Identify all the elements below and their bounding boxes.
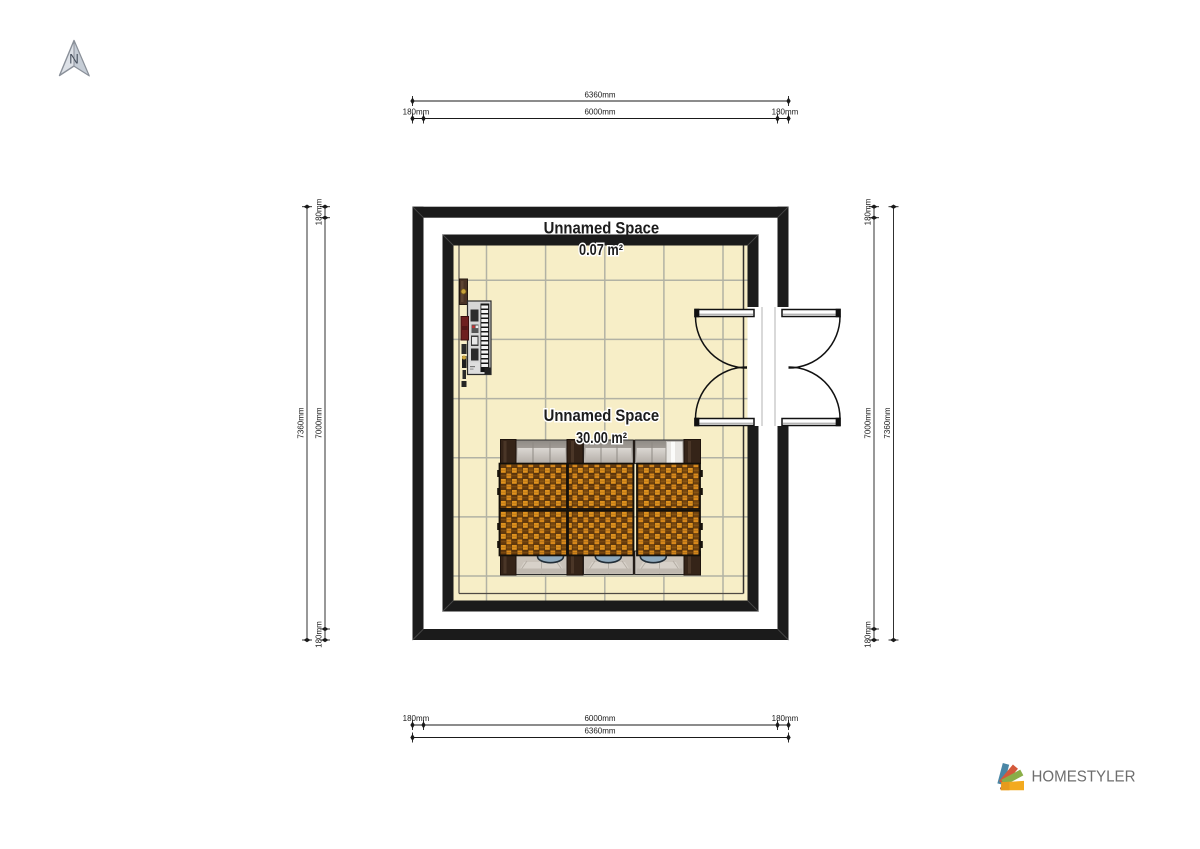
svg-text:180mm: 180mm [864, 198, 873, 225]
svg-text:6000mm: 6000mm [584, 108, 615, 117]
svg-text:6360mm: 6360mm [584, 91, 615, 100]
svg-text:180mm: 180mm [403, 714, 430, 723]
svg-text:7000mm: 7000mm [864, 407, 873, 438]
svg-text:180mm: 180mm [403, 108, 430, 117]
svg-text:180mm: 180mm [772, 108, 799, 117]
svg-text:N: N [69, 52, 79, 67]
svg-text:HOMESTYLER: HOMESTYLER [1032, 769, 1136, 786]
svg-text:30.00 m²: 30.00 m² [576, 430, 627, 447]
svg-text:0.07 m²: 0.07 m² [579, 242, 623, 259]
svg-text:Unnamed Space: Unnamed Space [544, 406, 660, 425]
svg-text:180mm: 180mm [315, 621, 324, 648]
svg-text:180mm: 180mm [315, 198, 324, 225]
svg-text:7000mm: 7000mm [315, 407, 324, 438]
svg-text:180mm: 180mm [864, 621, 873, 648]
svg-text:7360mm: 7360mm [883, 407, 892, 438]
svg-text:6360mm: 6360mm [584, 727, 615, 736]
svg-text:6000mm: 6000mm [584, 714, 615, 723]
svg-text:Unnamed Space: Unnamed Space [544, 218, 660, 237]
svg-text:180mm: 180mm [772, 714, 799, 723]
svg-text:7360mm: 7360mm [297, 407, 306, 438]
